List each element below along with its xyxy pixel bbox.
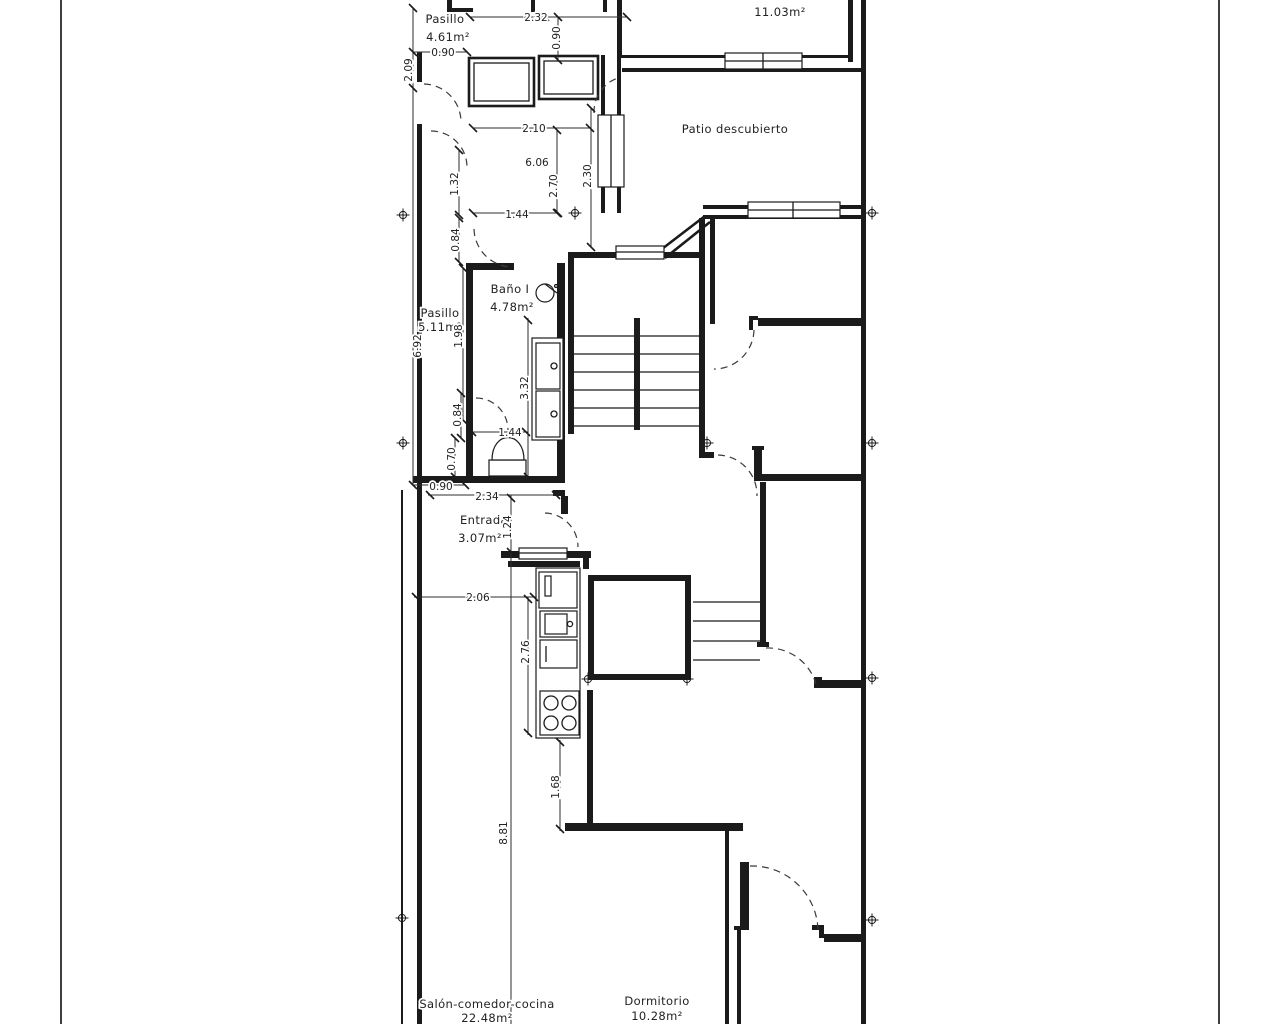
lightwell-shaft — [591, 578, 688, 677]
room-area-salon: 22.48m² — [461, 1011, 513, 1024]
door-entrance — [545, 513, 578, 547]
dim-0-70: 0.70 — [446, 447, 458, 470]
stair-treads-lower — [693, 602, 760, 660]
wardrobes — [469, 56, 598, 106]
door-bath — [474, 229, 513, 267]
room-label-dormitorio: Dormitorio — [624, 994, 689, 1008]
window-patio-top — [725, 53, 802, 69]
anchor-bolt — [569, 207, 582, 220]
dim-0-84-b: 0.84 — [452, 403, 464, 427]
door-left-upper — [424, 84, 461, 122]
anchor-bolt — [397, 209, 410, 222]
dim-1-68: 1.68 — [550, 775, 562, 798]
door-dormitorio — [750, 866, 818, 930]
door-wc — [476, 398, 508, 430]
room-area-dormitorio: 10.28m² — [631, 1009, 683, 1023]
dim-6-06: 6.06 — [525, 157, 549, 169]
anchor-bolt — [866, 437, 879, 450]
door-room-b — [718, 455, 757, 496]
stove — [540, 691, 579, 735]
room-label-pasillo-sup: Pasillo — [426, 12, 465, 26]
room-area-pasillo-sup: 4.61m² — [426, 30, 470, 44]
wash-basin — [536, 284, 558, 302]
anchor-bolt — [397, 437, 410, 450]
dim-2-10: 2.10 — [522, 123, 545, 135]
walls — [401, 0, 866, 1024]
dim-0-90-top: 0.90 — [551, 26, 563, 49]
kitchen-counter — [536, 568, 580, 738]
window-room-side — [598, 115, 624, 187]
room-label-patio: Patio descubierto — [682, 122, 788, 136]
room-label-bano1: Baño I — [491, 282, 530, 296]
dim-2-34: 2.34 — [475, 491, 499, 503]
vanity — [532, 338, 563, 440]
dim-2-30: 2.30 — [582, 164, 594, 187]
dim-3-32: 3.32 — [519, 376, 531, 399]
dim-1-44-b: 1.44 — [498, 427, 522, 439]
window-stair-top — [616, 246, 664, 259]
dim-1-44-a: 1.44 — [505, 209, 529, 221]
window-entrance — [519, 548, 567, 559]
dim-1-32: 1.32 — [449, 172, 461, 195]
stairs — [574, 336, 760, 660]
dim-2-06: 2.06 — [466, 592, 490, 604]
dim-1-24: 1.24 — [502, 515, 514, 539]
anchor-bolt — [866, 672, 879, 685]
window-patio-bottom — [748, 202, 840, 218]
room-label-entrada: Entrada — [460, 513, 508, 527]
door-room-c — [766, 648, 816, 684]
anchor-bolt — [866, 914, 879, 927]
dim-0-90-b: 0.90 — [429, 481, 452, 493]
fridge — [539, 572, 577, 608]
dim-1-98: 1.98 — [453, 324, 465, 347]
door-room-a — [714, 330, 754, 369]
floorplan-canvas: Pasillo 4.61m² 11.03m² Patio descubierto… — [0, 0, 1280, 1024]
kitchen-sink — [540, 611, 577, 637]
dim-2-76: 2.76 — [520, 640, 532, 664]
dim-8-81: 8.81 — [498, 821, 510, 844]
dim-0-84-a: 0.84 — [450, 228, 462, 252]
toilet — [489, 438, 526, 477]
dim-6-92: 6.92 — [412, 334, 424, 357]
room-label-salon: Salón-comedor-cocina — [419, 997, 554, 1011]
anchor-bolt — [866, 207, 879, 220]
anchor-bolt — [396, 912, 409, 925]
dim-0-90-left: 0.90 — [431, 47, 454, 59]
dim-2-32: 2.32 — [524, 12, 547, 24]
dim-2-09: 2.09 — [403, 58, 415, 81]
room-area-lavadero: 11.03m² — [754, 5, 806, 19]
room-label-pasillo-mid: Pasillo — [421, 306, 460, 320]
windows — [519, 53, 840, 559]
room-area-entrada: 3.07m² — [458, 531, 502, 545]
cabinet — [540, 640, 577, 668]
dim-2-70: 2.70 — [548, 174, 560, 197]
room-area-bano1: 4.78m² — [490, 300, 534, 314]
page-frame — [61, 0, 1219, 1024]
door-left-lower — [431, 131, 467, 167]
